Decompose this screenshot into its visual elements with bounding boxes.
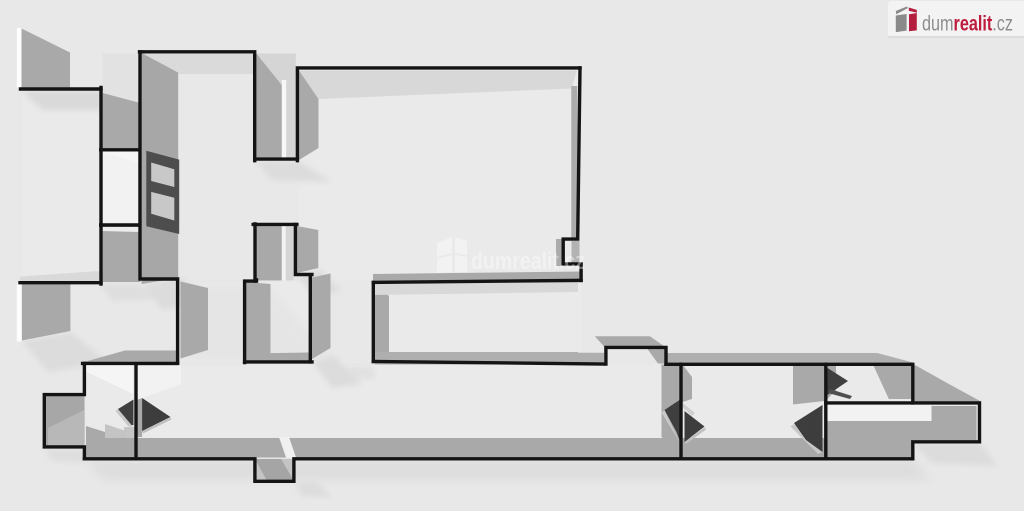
- svg-text:dumrealit.cz: dumrealit.cz: [922, 13, 1013, 36]
- svg-text:dumrealit.cz: dumrealit.cz: [471, 248, 585, 275]
